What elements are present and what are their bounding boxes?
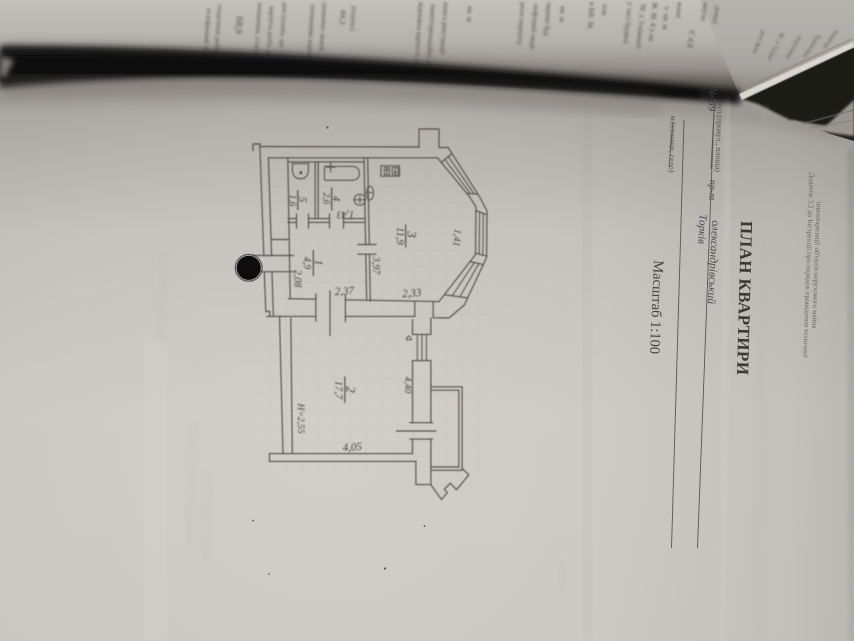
svg-text:2,6: 2,6 xyxy=(320,193,330,205)
svg-text:Н=2,55: Н=2,55 xyxy=(295,403,305,434)
svg-text:84,3: 84,3 xyxy=(338,10,348,25)
svg-text:68,9: 68,9 xyxy=(232,16,245,35)
svg-text:3,97: 3,97 xyxy=(370,256,381,276)
svg-text:інвентарна справа: інвентарна справа xyxy=(200,470,216,563)
svg-text:ПЛАН КВАРТИРИ: ПЛАН КВАРТИРИ xyxy=(733,221,756,376)
svg-text:2,33: 2,33 xyxy=(402,287,423,300)
svg-text:кв. м: кв. м xyxy=(465,6,475,23)
svg-text:5: 5 xyxy=(296,197,308,203)
svg-text:пр-т: пр-т xyxy=(706,180,718,201)
svg-text:4,9: 4,9 xyxy=(301,257,312,270)
svg-text:2,37: 2,37 xyxy=(334,285,354,298)
svg-text:11,9: 11,9 xyxy=(394,227,405,245)
svg-text:2: 2 xyxy=(344,386,359,393)
svg-text:4,05: 4,05 xyxy=(342,441,363,454)
svg-text:3: 3 xyxy=(405,230,420,238)
svg-text:4,40: 4,40 xyxy=(402,377,412,394)
svg-text:1,6: 1,6 xyxy=(287,195,297,207)
svg-text:кімната: кімната xyxy=(556,560,571,600)
svg-text:технічний паспорт: технічний паспорт xyxy=(155,250,171,346)
svg-text:кв. м: кв. м xyxy=(558,6,568,23)
svg-text:1,41: 1,41 xyxy=(450,229,462,247)
svg-text:17,7: 17,7 xyxy=(333,381,344,400)
svg-text:Торків: Торків xyxy=(695,214,709,245)
svg-text:2,08: 2,08 xyxy=(292,270,303,288)
svg-text:1: 1 xyxy=(312,260,326,266)
svg-text:1,43: 1,43 xyxy=(337,209,355,220)
svg-text:хмиз будинку вартість: хмиз будинку вартість xyxy=(185,420,202,543)
svg-text:4: 4 xyxy=(330,196,342,202)
svg-text:нок: нок xyxy=(600,4,610,17)
